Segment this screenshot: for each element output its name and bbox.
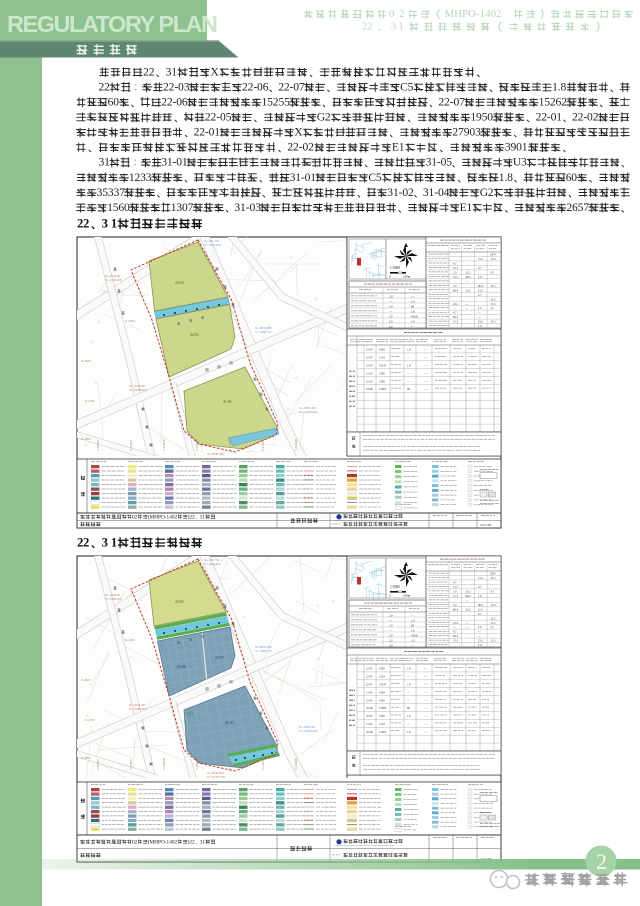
svg-text:2017.08: 2017.08 xyxy=(480,523,491,527)
svg-text:2.0: 2.0 xyxy=(389,324,393,328)
svg-text:X-2600: X-2600 xyxy=(81,678,91,682)
svg-text:Y=-3485.747: Y=-3485.747 xyxy=(255,649,272,653)
svg-text:)22: )22 xyxy=(188,513,195,520)
svg-text:—: — xyxy=(452,307,456,310)
svg-text:22-06: 22-06 xyxy=(242,81,269,94)
svg-text:1950: 1950 xyxy=(379,379,385,383)
svg-text:15.3: 15.3 xyxy=(491,321,496,324)
svg-text:)22: )22 xyxy=(188,838,195,845)
svg-text:X: X xyxy=(210,65,219,78)
svg-text:—: — xyxy=(452,626,456,629)
svg-text:—: — xyxy=(410,613,414,617)
svg-text:—: — xyxy=(423,387,427,391)
svg-text:Y-112000: Y-112000 xyxy=(228,438,232,451)
svg-text:02: 02 xyxy=(132,514,138,520)
svg-text:Y-19000: Y-19000 xyxy=(129,440,133,451)
svg-text:22-07: 22-07 xyxy=(366,667,373,671)
svg-text:31-01: 31-01 xyxy=(161,156,188,169)
svg-text:Y-113000: Y-113000 xyxy=(261,757,265,770)
svg-text:—: — xyxy=(406,675,410,679)
svg-text:Y=-3485.747: Y=-3485.747 xyxy=(255,330,272,334)
svg-text:(MHPO-1402: (MHPO-1402 xyxy=(148,838,178,845)
svg-text:Y=-13306.422: Y=-13306.422 xyxy=(299,410,318,414)
svg-text:X: X xyxy=(294,126,303,139)
svg-text:E1: E1 xyxy=(392,141,405,154)
svg-text:—: — xyxy=(465,280,469,283)
svg-text:02: 02 xyxy=(132,839,138,845)
svg-text:23.2: 23.2 xyxy=(478,321,483,324)
svg-text:1.8: 1.8 xyxy=(411,309,415,313)
svg-text:1.8: 1.8 xyxy=(389,304,393,308)
svg-text:4.7: 4.7 xyxy=(491,307,495,310)
svg-text:4.7: 4.7 xyxy=(491,591,495,594)
svg-text:—: — xyxy=(423,348,427,352)
svg-text:—: — xyxy=(477,312,481,315)
svg-text:23.2: 23.2 xyxy=(466,591,471,594)
svg-text:60: 60 xyxy=(108,96,120,109)
svg-text:1.8: 1.8 xyxy=(411,638,415,642)
svg-text:1950: 1950 xyxy=(379,714,385,718)
svg-text:1:5000: 1:5000 xyxy=(390,266,400,270)
svg-text:X-2700: X-2700 xyxy=(85,399,95,403)
svg-text:—: — xyxy=(388,628,392,632)
svg-text:—: — xyxy=(477,316,481,319)
svg-text:1950: 1950 xyxy=(379,667,385,671)
svg-text:—: — xyxy=(423,714,427,718)
svg-text:31-02: 31-02 xyxy=(387,186,414,199)
svg-text:E1: E1 xyxy=(460,201,473,214)
svg-text:1.8: 1.8 xyxy=(411,628,415,632)
svg-text:Y-112000: Y-112000 xyxy=(228,757,232,770)
svg-text:22-05: 22-05 xyxy=(366,698,373,702)
svg-text:X-2800: X-2800 xyxy=(81,437,91,441)
svg-text:22-05: 22-05 xyxy=(205,111,232,124)
svg-text:1.9: 1.9 xyxy=(453,604,457,607)
svg-text:Y-19000: Y-19000 xyxy=(129,759,133,770)
svg-text:1233: 1233 xyxy=(379,356,385,360)
svg-text:22-07: 22-07 xyxy=(366,364,373,368)
svg-text:1.8: 1.8 xyxy=(407,667,411,671)
svg-text:31-03: 31-03 xyxy=(234,201,261,214)
svg-text:2657: 2657 xyxy=(566,201,589,214)
svg-text:15.3: 15.3 xyxy=(478,289,483,292)
svg-text:—: — xyxy=(423,371,427,375)
svg-text:22-03: 22-03 xyxy=(163,81,190,94)
svg-text:22-07: 22-07 xyxy=(438,96,465,109)
svg-text:2.0: 2.0 xyxy=(389,613,393,617)
svg-text:REGULATORY PLAN: REGULATORY PLAN xyxy=(7,11,219,37)
svg-text:—: — xyxy=(465,622,469,625)
svg-text:1.8: 1.8 xyxy=(411,319,415,323)
svg-text:31-05: 31-05 xyxy=(366,690,373,694)
svg-text:15.3: 15.3 xyxy=(478,608,483,611)
svg-text:X-2500: X-2500 xyxy=(125,638,135,642)
svg-text:—: — xyxy=(410,324,414,328)
svg-text:Y-114000: Y-114000 xyxy=(294,757,298,770)
svg-text:22-07: 22-07 xyxy=(366,348,373,352)
svg-text:—: — xyxy=(406,379,410,383)
svg-text:2.0: 2.0 xyxy=(389,319,393,323)
svg-text:45631: 45631 xyxy=(411,314,419,318)
svg-text:22-06: 22-06 xyxy=(366,387,373,391)
svg-text:—: — xyxy=(388,618,392,622)
svg-text:60.4: 60.4 xyxy=(453,608,458,611)
svg-text:1233: 1233 xyxy=(379,675,385,679)
svg-text:Y-111000: Y-111000 xyxy=(195,758,199,770)
svg-text:60.4: 60.4 xyxy=(453,635,458,638)
svg-text:—: — xyxy=(477,631,481,634)
svg-text:23.2: 23.2 xyxy=(478,640,483,643)
svg-text:15.3: 15.3 xyxy=(453,586,458,589)
svg-text:Y-110000: Y-110000 xyxy=(162,757,166,770)
svg-text:22-01: 22-01 xyxy=(190,333,199,337)
svg-text:27903: 27903 xyxy=(452,126,481,139)
svg-text:—: — xyxy=(477,635,481,638)
svg-text:Y-18000: Y-18000 xyxy=(96,759,100,770)
svg-text:—: — xyxy=(465,307,469,310)
svg-text:15.3: 15.3 xyxy=(491,640,496,643)
svg-text:1.9: 1.9 xyxy=(478,644,482,647)
svg-text:15.3: 15.3 xyxy=(491,604,496,607)
svg-text:U3: U3 xyxy=(513,156,527,169)
svg-text:15.3: 15.3 xyxy=(491,303,496,306)
svg-text:1.8: 1.8 xyxy=(411,299,415,303)
svg-text:—: — xyxy=(406,698,410,702)
svg-text:15.3: 15.3 xyxy=(453,640,458,643)
svg-text:1.8: 1.8 xyxy=(407,730,411,734)
svg-text:15262: 15262 xyxy=(539,96,568,109)
svg-text:27903: 27903 xyxy=(379,706,387,710)
svg-text:—: — xyxy=(465,599,469,602)
svg-text:22-05: 22-05 xyxy=(366,379,373,383)
svg-text:4.7: 4.7 xyxy=(478,613,482,616)
svg-text:22-06: 22-06 xyxy=(161,96,188,109)
svg-text:60.4: 60.4 xyxy=(478,604,483,607)
svg-text:2.0: 2.0 xyxy=(389,643,393,647)
svg-text:1560: 1560 xyxy=(107,201,130,214)
svg-text:15.3: 15.3 xyxy=(491,622,496,625)
svg-text:4.7: 4.7 xyxy=(453,312,457,315)
svg-text:22-02: 22-02 xyxy=(572,111,599,124)
svg-text:15255: 15255 xyxy=(262,96,291,109)
svg-text:22-01: 22-01 xyxy=(175,600,184,604)
svg-text:—: — xyxy=(423,364,427,368)
svg-text:1.8: 1.8 xyxy=(499,171,513,184)
svg-text:22: 22 xyxy=(143,65,155,78)
svg-text:22: 22 xyxy=(77,216,89,230)
svg-text:1233: 1233 xyxy=(379,722,385,726)
svg-text:31: 31 xyxy=(166,65,178,78)
svg-text:Y=-19812.08: Y=-19812.08 xyxy=(105,597,122,601)
svg-text:1950: 1950 xyxy=(470,111,493,124)
svg-text:31: 31 xyxy=(200,839,206,845)
svg-text:Y=-13306.422: Y=-13306.422 xyxy=(299,729,318,733)
svg-text:15.3: 15.3 xyxy=(453,321,458,324)
svg-text:Y-18000: Y-18000 xyxy=(96,440,100,451)
svg-text:23.2: 23.2 xyxy=(453,303,458,306)
svg-text:1.8: 1.8 xyxy=(411,618,415,622)
svg-text:—: — xyxy=(423,675,427,679)
svg-text:15.3: 15.3 xyxy=(491,258,496,261)
svg-text:1233: 1233 xyxy=(129,171,152,184)
svg-text:X-2700: X-2700 xyxy=(85,718,95,722)
svg-text:X-2800: X-2800 xyxy=(81,756,91,760)
svg-text:4.7: 4.7 xyxy=(491,272,495,275)
svg-text:22-03: 22-03 xyxy=(175,281,184,285)
svg-text:1.8: 1.8 xyxy=(407,348,411,352)
svg-text:—: — xyxy=(423,730,427,734)
svg-text:23.2: 23.2 xyxy=(466,289,471,292)
svg-text:4.7: 4.7 xyxy=(478,267,482,270)
svg-text:—: — xyxy=(423,698,427,702)
svg-text:—: — xyxy=(410,643,414,647)
svg-text:—: — xyxy=(423,379,427,383)
svg-text:22-07: 22-07 xyxy=(366,683,373,687)
svg-text:35337: 35337 xyxy=(97,186,126,199)
svg-text:—: — xyxy=(406,356,410,360)
svg-text:X-2500: X-2500 xyxy=(125,319,135,323)
svg-text:22-02: 22-02 xyxy=(287,141,314,154)
svg-text:—: — xyxy=(406,690,410,694)
svg-text:22-07: 22-07 xyxy=(215,656,224,660)
svg-text:22-07: 22-07 xyxy=(366,356,373,360)
svg-text:1.9: 1.9 xyxy=(478,276,482,279)
svg-text:—: — xyxy=(388,299,392,303)
svg-text:15.3: 15.3 xyxy=(478,258,483,261)
svg-text:60.4: 60.4 xyxy=(491,254,496,257)
svg-text:100m: 100m xyxy=(403,594,411,598)
svg-text:2: 2 xyxy=(596,849,607,874)
svg-text:3901: 3901 xyxy=(505,141,528,154)
svg-text:—: — xyxy=(465,303,469,306)
svg-text:—: — xyxy=(406,371,410,375)
svg-text:1:5000: 1:5000 xyxy=(390,585,400,589)
svg-text:22: 22 xyxy=(77,535,89,549)
svg-text:C5: C5 xyxy=(368,171,382,184)
svg-text:1307: 1307 xyxy=(171,201,194,214)
svg-text:15.3: 15.3 xyxy=(478,577,483,580)
svg-text:35337: 35337 xyxy=(379,683,387,687)
svg-text:60.4: 60.4 xyxy=(466,595,471,598)
svg-text:2.0: 2.0 xyxy=(389,638,393,642)
svg-text:35337: 35337 xyxy=(379,364,387,368)
svg-text:31-01: 31-01 xyxy=(366,722,373,726)
svg-text:31-05: 31-05 xyxy=(426,156,453,169)
svg-text:60.4: 60.4 xyxy=(453,289,458,292)
svg-text:31-01: 31-01 xyxy=(290,171,317,184)
svg-text:X-2600: X-2600 xyxy=(81,359,91,363)
svg-text:22: 22 xyxy=(99,81,111,94)
svg-text:22-06: 22-06 xyxy=(366,730,373,734)
svg-text:—: — xyxy=(388,309,392,313)
svg-text:—: — xyxy=(465,626,469,629)
svg-text:1.8: 1.8 xyxy=(407,714,411,718)
svg-text:Y=-19812.08: Y=-19812.08 xyxy=(105,278,122,282)
svg-text:1.8: 1.8 xyxy=(407,683,411,687)
svg-text:Y=-3602.814: Y=-3602.814 xyxy=(204,243,221,247)
svg-text:60.4: 60.4 xyxy=(478,285,483,288)
svg-text:31-04: 31-04 xyxy=(423,186,450,199)
svg-text:Y-113000: Y-113000 xyxy=(261,438,265,451)
svg-text:1.9: 1.9 xyxy=(478,595,482,598)
svg-text:—: — xyxy=(423,690,427,694)
svg-text:22-06: 22-06 xyxy=(366,706,373,710)
svg-text:1.8: 1.8 xyxy=(389,623,393,627)
svg-text:31-05: 31-05 xyxy=(366,371,373,375)
svg-text:1.8: 1.8 xyxy=(407,364,411,368)
svg-text:(MHPO-1402: (MHPO-1402 xyxy=(148,513,178,520)
svg-text:31-01: 31-01 xyxy=(225,721,234,725)
svg-text:1.9: 1.9 xyxy=(453,272,457,275)
svg-text:4.7: 4.7 xyxy=(453,263,457,266)
svg-text:1.9: 1.9 xyxy=(478,325,482,328)
svg-text:2.0: 2.0 xyxy=(389,314,393,318)
svg-text:45631: 45631 xyxy=(411,633,419,637)
svg-text:23.2: 23.2 xyxy=(466,272,471,275)
svg-text:C5: C5 xyxy=(400,81,414,94)
svg-text:1.8: 1.8 xyxy=(552,81,566,94)
svg-text:4.7: 4.7 xyxy=(453,582,457,585)
svg-text:—: — xyxy=(423,667,427,671)
svg-text:4.7: 4.7 xyxy=(453,631,457,634)
svg-text:Y-110000: Y-110000 xyxy=(162,438,166,451)
svg-text:—: — xyxy=(423,683,427,687)
svg-text:23.2: 23.2 xyxy=(491,617,496,620)
svg-text:2.0: 2.0 xyxy=(389,294,393,298)
svg-text:Y=-19485.872: Y=-19485.872 xyxy=(129,388,148,392)
svg-text:22: 22 xyxy=(362,22,372,33)
svg-text:27903: 27903 xyxy=(379,387,387,391)
svg-text:4.7: 4.7 xyxy=(478,294,482,297)
svg-text:15.3: 15.3 xyxy=(453,276,458,279)
svg-text:4.7: 4.7 xyxy=(491,626,495,629)
svg-text:22-07: 22-07 xyxy=(366,714,373,718)
svg-text:22-01: 22-01 xyxy=(536,111,563,124)
svg-text:15.3: 15.3 xyxy=(491,285,496,288)
svg-text:31: 31 xyxy=(200,514,206,520)
svg-text:23.2: 23.2 xyxy=(453,622,458,625)
svg-text:1950: 1950 xyxy=(379,348,385,352)
svg-text:4.7: 4.7 xyxy=(478,586,482,589)
svg-text:Y=-3602.814: Y=-3602.814 xyxy=(204,562,221,566)
svg-text:22-07: 22-07 xyxy=(366,675,373,679)
svg-text:G2: G2 xyxy=(480,186,494,199)
svg-text:—: — xyxy=(410,294,414,298)
svg-text:1.9: 1.9 xyxy=(453,285,457,288)
svg-text:22-06: 22-06 xyxy=(177,665,186,669)
svg-text:1950: 1950 xyxy=(379,698,385,702)
svg-text:27903: 27903 xyxy=(379,730,387,734)
svg-text:Y-111000: Y-111000 xyxy=(195,439,199,451)
svg-text:31-01: 31-01 xyxy=(223,400,232,404)
svg-text:23.2: 23.2 xyxy=(466,608,471,611)
svg-text:1.9: 1.9 xyxy=(478,307,482,310)
svg-text:60.4: 60.4 xyxy=(466,276,471,279)
svg-text:100m: 100m xyxy=(403,275,411,279)
svg-text:31: 31 xyxy=(99,156,111,169)
svg-text:15.3: 15.3 xyxy=(453,595,458,598)
svg-text:—: — xyxy=(423,706,427,710)
svg-text:15.3: 15.3 xyxy=(491,577,496,580)
svg-text:2.0: 2.0 xyxy=(389,633,393,637)
svg-text:60.4: 60.4 xyxy=(453,316,458,319)
svg-text:MHPO-1402: MHPO-1402 xyxy=(445,9,502,20)
svg-text:G2: G2 xyxy=(317,111,331,124)
svg-text:1950: 1950 xyxy=(379,371,385,375)
svg-text:22-07: 22-07 xyxy=(278,81,305,94)
svg-text:—: — xyxy=(406,722,410,726)
svg-text:1.9: 1.9 xyxy=(478,626,482,629)
svg-text:23.2: 23.2 xyxy=(491,298,496,301)
svg-text:—: — xyxy=(423,722,427,726)
svg-text:Y-114000: Y-114000 xyxy=(294,438,298,451)
svg-text:22-01: 22-01 xyxy=(194,126,221,139)
svg-text:60: 60 xyxy=(566,171,578,184)
svg-text:15.3: 15.3 xyxy=(453,267,458,270)
svg-text:Y=-19485.872: Y=-19485.872 xyxy=(129,707,148,711)
svg-text:1950: 1950 xyxy=(379,690,385,694)
svg-text:60.4: 60.4 xyxy=(491,573,496,576)
svg-text:—: — xyxy=(423,356,427,360)
svg-text:1.9: 1.9 xyxy=(453,591,457,594)
